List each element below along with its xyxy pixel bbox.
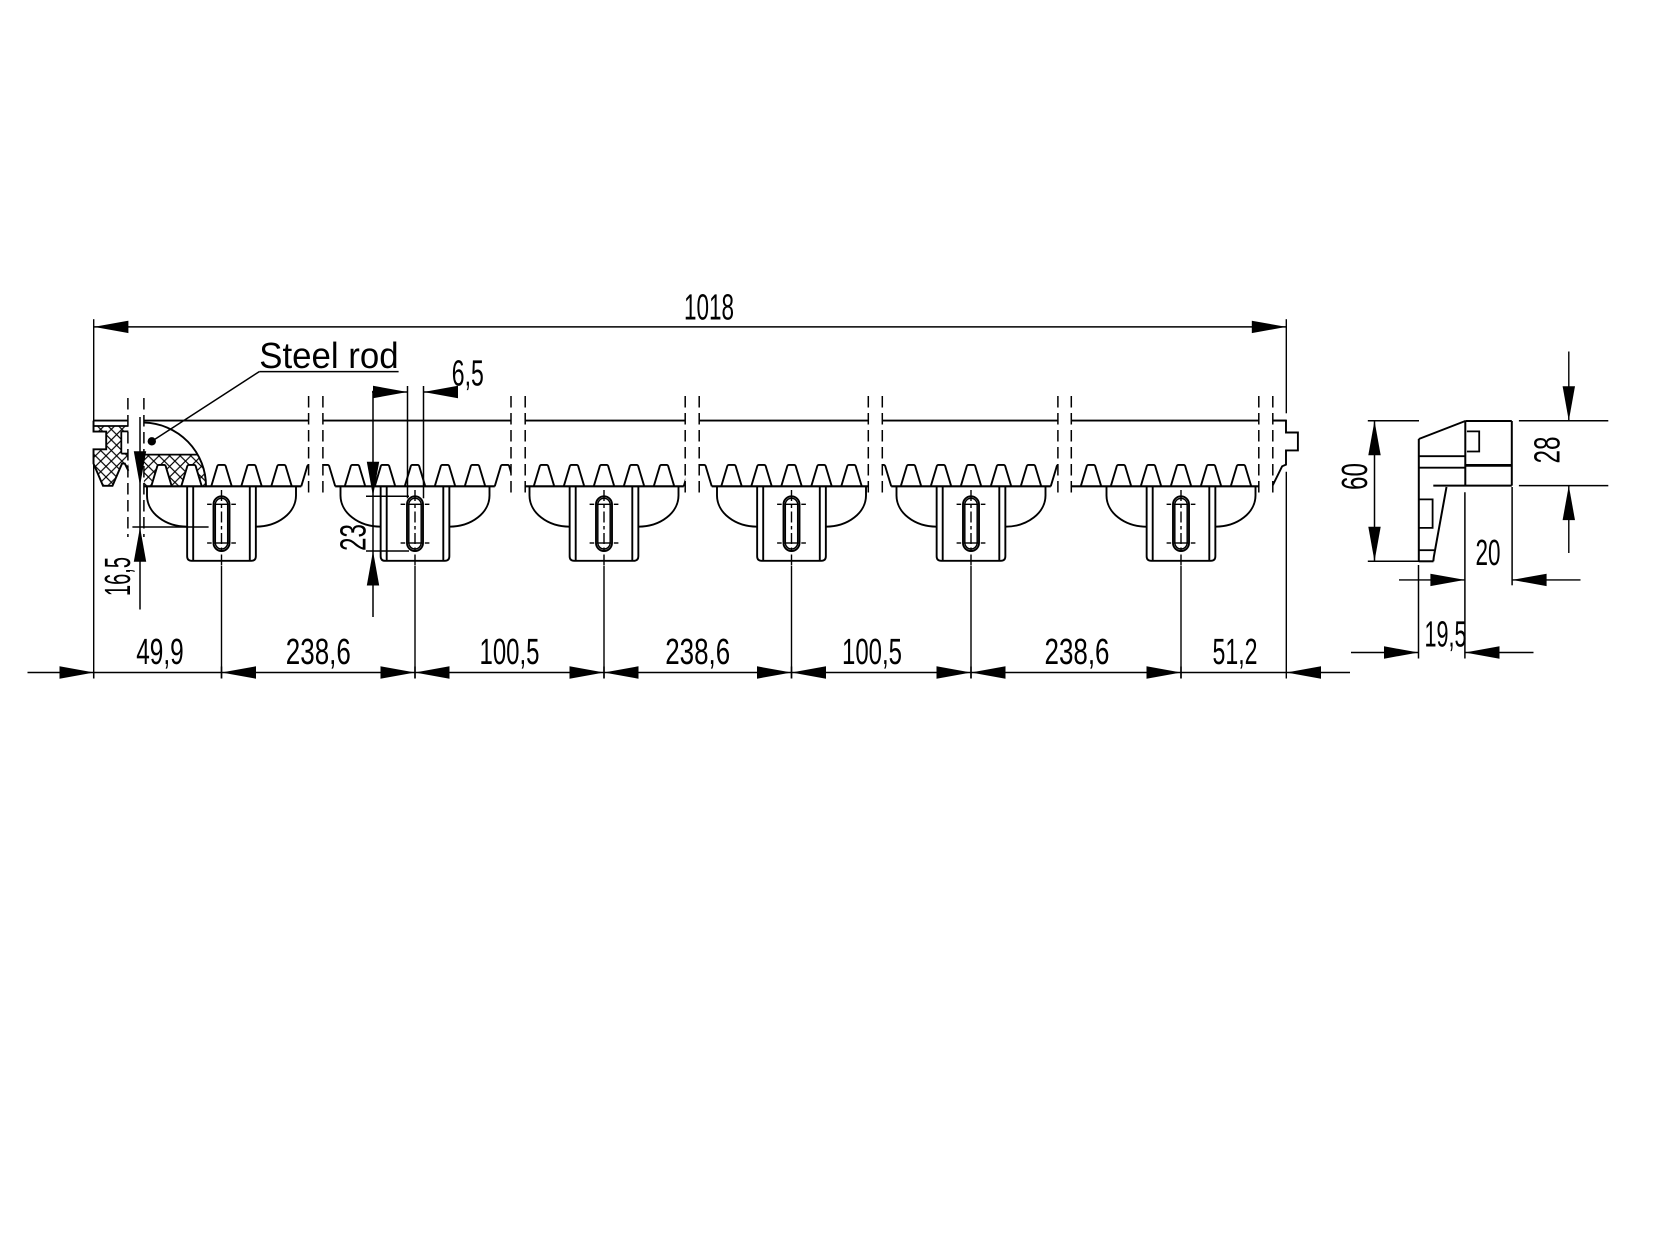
svg-text:1018: 1018 [684,287,734,328]
svg-text:238,6: 238,6 [1045,631,1110,672]
svg-text:51,2: 51,2 [1213,631,1258,672]
svg-text:19,5: 19,5 [1425,614,1467,655]
svg-text:23: 23 [333,524,374,551]
svg-text:Steel rod: Steel rod [259,335,398,376]
svg-text:60: 60 [1334,463,1375,490]
svg-text:100,5: 100,5 [842,631,902,672]
svg-text:16,5: 16,5 [97,557,138,596]
svg-text:238,6: 238,6 [665,631,730,672]
svg-text:238,6: 238,6 [286,631,351,672]
svg-text:100,5: 100,5 [480,631,540,672]
svg-text:49,9: 49,9 [136,631,184,672]
svg-text:6,5: 6,5 [452,353,484,394]
svg-text:28: 28 [1527,437,1568,464]
svg-text:20: 20 [1476,532,1501,573]
